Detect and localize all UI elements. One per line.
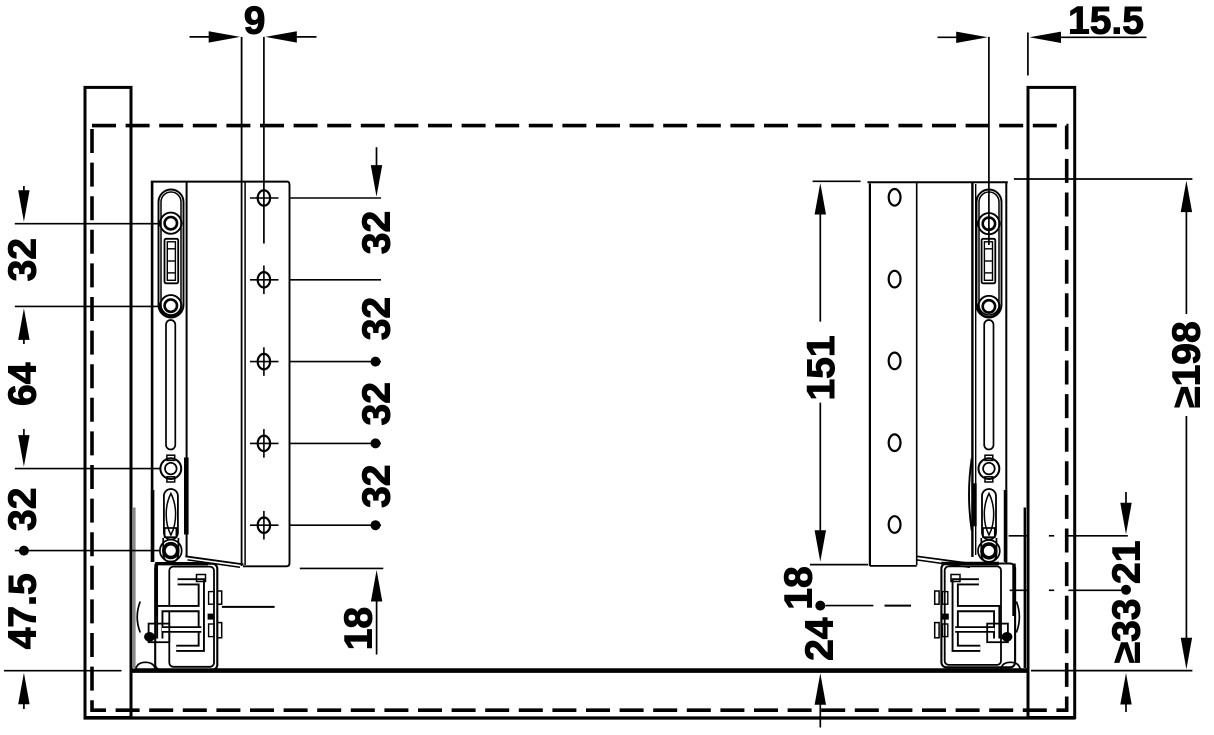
- svg-text:64: 64: [2, 362, 45, 406]
- svg-text:47.5: 47.5: [2, 573, 45, 649]
- svg-text:32: 32: [356, 211, 399, 254]
- svg-text:32: 32: [356, 382, 399, 425]
- svg-text:≥33: ≥33: [1106, 599, 1149, 664]
- svg-text:32: 32: [356, 297, 399, 340]
- svg-text:32: 32: [356, 465, 399, 508]
- svg-text:18: 18: [338, 607, 381, 650]
- svg-text:32: 32: [2, 488, 45, 531]
- svg-text:21: 21: [1106, 541, 1149, 584]
- svg-text:24: 24: [798, 617, 841, 661]
- svg-text:9: 9: [244, 0, 266, 43]
- svg-text:≥198: ≥198: [1165, 321, 1208, 407]
- svg-text:32: 32: [2, 238, 45, 281]
- svg-text:15.5: 15.5: [1068, 0, 1144, 43]
- svg-text:151: 151: [800, 335, 843, 400]
- svg-text:18: 18: [778, 566, 821, 609]
